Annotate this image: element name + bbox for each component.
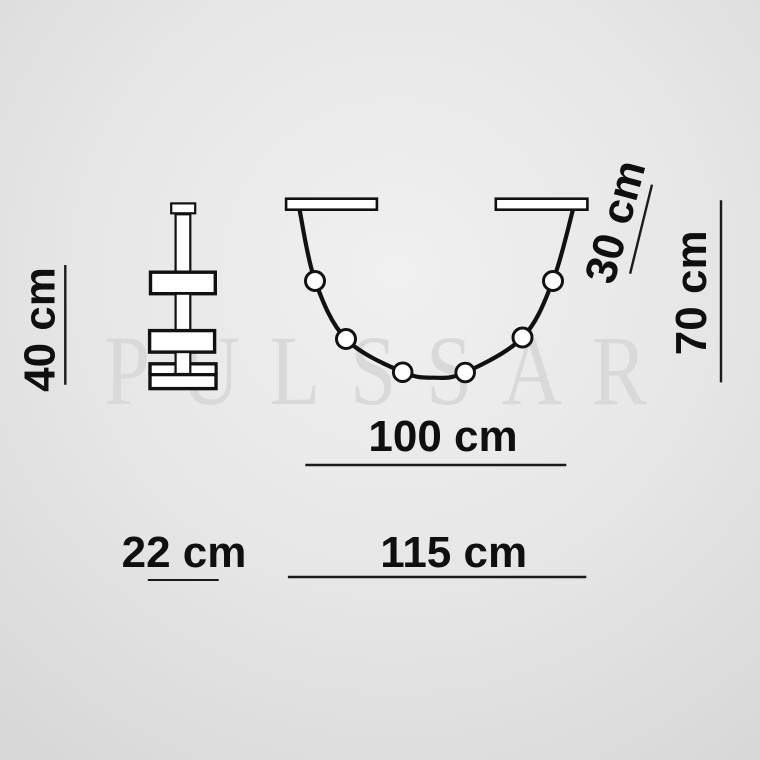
svg-text:115 cm: 115 cm	[380, 528, 527, 577]
svg-text:40 cm: 40 cm	[16, 267, 65, 392]
svg-text:70 cm: 70 cm	[667, 230, 716, 355]
svg-text:22 cm: 22 cm	[122, 528, 247, 577]
svg-text:100 cm: 100 cm	[368, 412, 517, 461]
